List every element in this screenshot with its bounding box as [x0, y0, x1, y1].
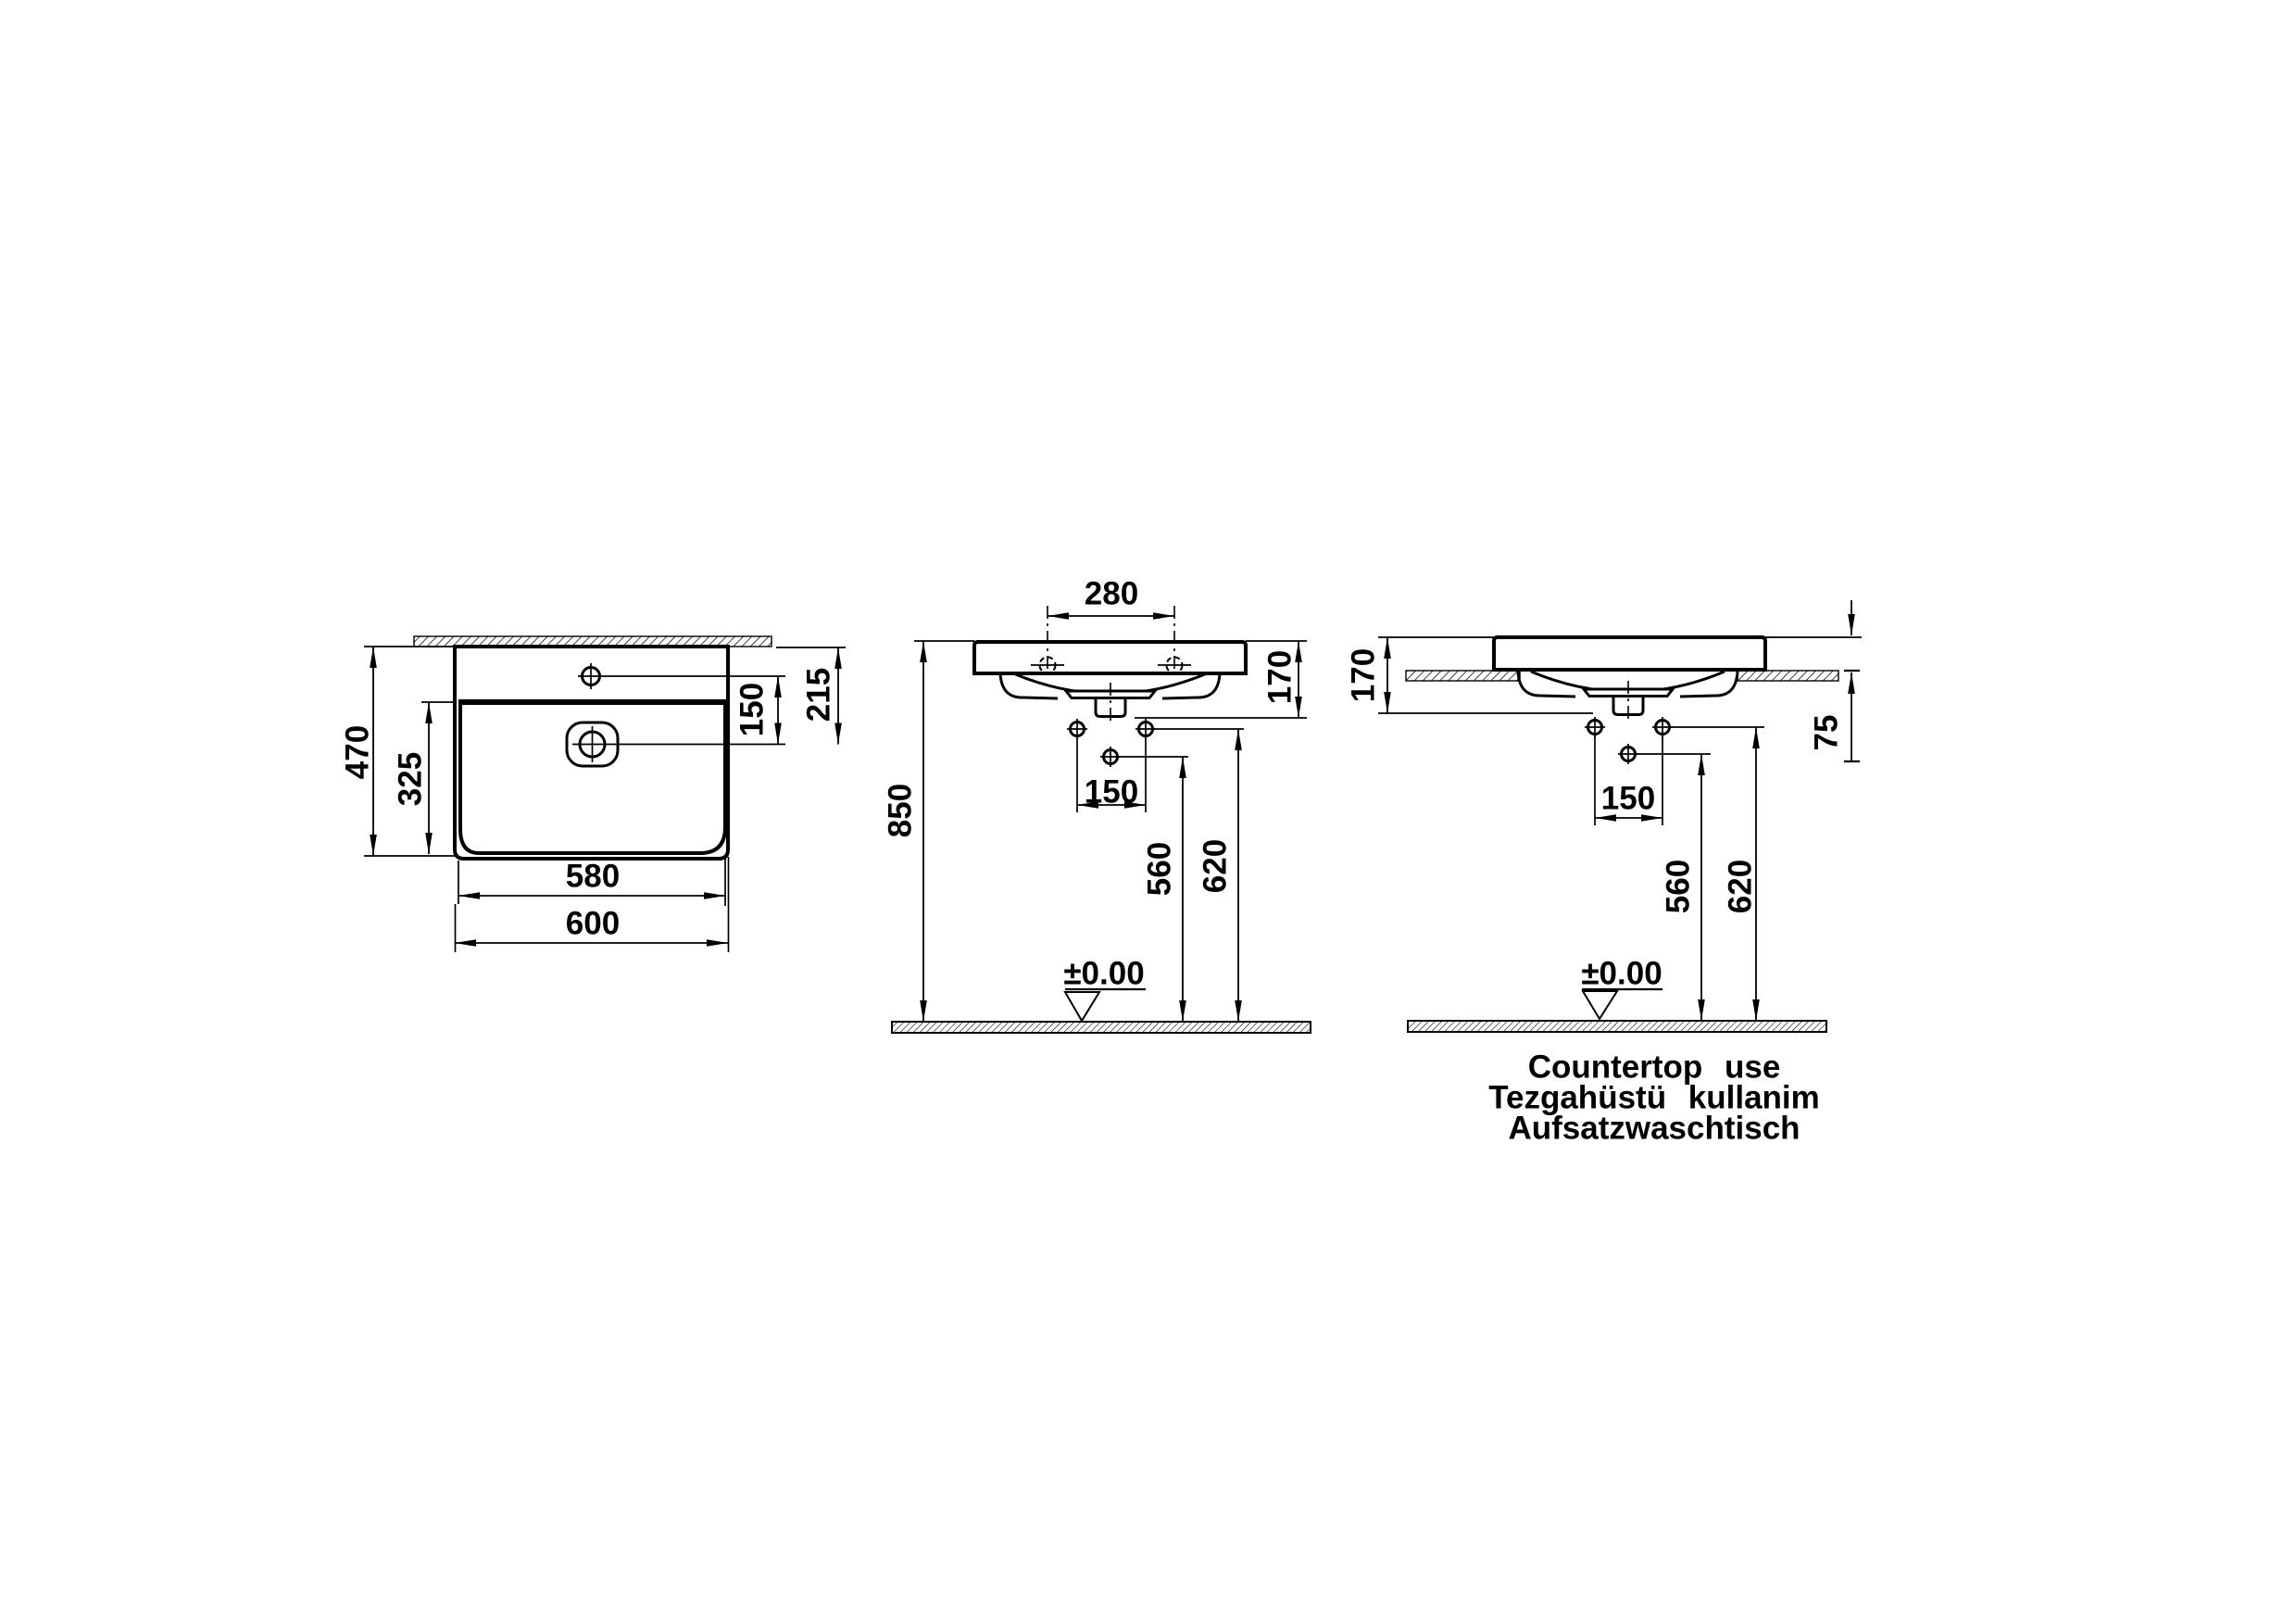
dim-label-rim-from-floor: 850: [883, 784, 919, 837]
caption-line-3: Aufsatzwaschtisch: [1508, 1111, 1800, 1147]
datum-label: ±0.00: [1581, 956, 1662, 992]
wall-mounted-view: 280 850 170 150 560: [883, 576, 1311, 1034]
dim-bowl-width: 580: [458, 857, 725, 906]
dim-overall-depth: 470: [340, 647, 456, 856]
connection-holes: [1067, 719, 1156, 767]
datum-label: ±0.00: [1063, 956, 1144, 992]
plan-view: 470 325 150 215 580: [340, 636, 847, 952]
dim-label-basin-height: 170: [1262, 650, 1299, 704]
bowl-outline: [460, 702, 725, 853]
dim-wall-to-drain: 215: [776, 647, 846, 745]
dim-label-overall-width: 600: [566, 906, 620, 942]
floor-datum: ±0.00: [1581, 956, 1662, 1020]
bowl-underside: [1000, 673, 1220, 723]
washbasin-dimension-drawing: 470 325 150 215 580: [0, 0, 2296, 1621]
datum-triangle: [1583, 991, 1617, 1019]
basin-body: [1494, 637, 1765, 670]
dim-tap-centers: 280: [1048, 576, 1174, 617]
countertop-view: 170 75 150 560 620: [1346, 600, 1863, 1147]
dim-basin-height: 170: [1135, 641, 1307, 718]
technical-drawing-sheet: 470 325 150 215 580: [0, 0, 2296, 1621]
datum-triangle: [1065, 992, 1099, 1021]
dim-label-tap-to-drain: 150: [734, 683, 771, 736]
dim-label-supply-spacing: 150: [1601, 781, 1655, 817]
dim-label-supply-from-floor: 620: [1198, 839, 1234, 893]
dim-rim-from-floor: 850: [883, 641, 975, 1022]
dim-label-tap-centers: 280: [1085, 576, 1138, 612]
dim-tap-to-drain: 150: [734, 676, 779, 745]
dim-label-supply-spacing: 150: [1085, 774, 1138, 810]
dim-label-bowl-width: 580: [566, 859, 620, 895]
connection-holes: [1585, 717, 1673, 764]
basin-body: [974, 642, 1246, 673]
dim-bowl-depth: 325: [393, 702, 455, 854]
dim-label-rim-above-counter: 75: [1809, 715, 1845, 751]
dim-label-wall-to-drain: 215: [801, 668, 837, 722]
dim-label-drain-from-floor: 560: [1142, 842, 1178, 896]
dim-label-basin-height: 170: [1346, 648, 1382, 702]
countertop-section: [1406, 671, 1838, 681]
dim-label-overall-depth: 470: [340, 725, 376, 779]
view-caption: Countertop use Tezgahüstü kullanim Aufsa…: [1488, 1049, 1820, 1147]
dim-label-supply-from-floor: 620: [1723, 860, 1759, 913]
bowl-underside: [1518, 672, 1738, 722]
floor-section: [892, 1022, 1311, 1033]
floor-datum: ±0.00: [1063, 956, 1146, 1022]
dim-label-bowl-depth: 325: [393, 752, 429, 806]
dim-label-drain-from-floor: 560: [1661, 860, 1697, 913]
floor-section: [1408, 1021, 1826, 1032]
